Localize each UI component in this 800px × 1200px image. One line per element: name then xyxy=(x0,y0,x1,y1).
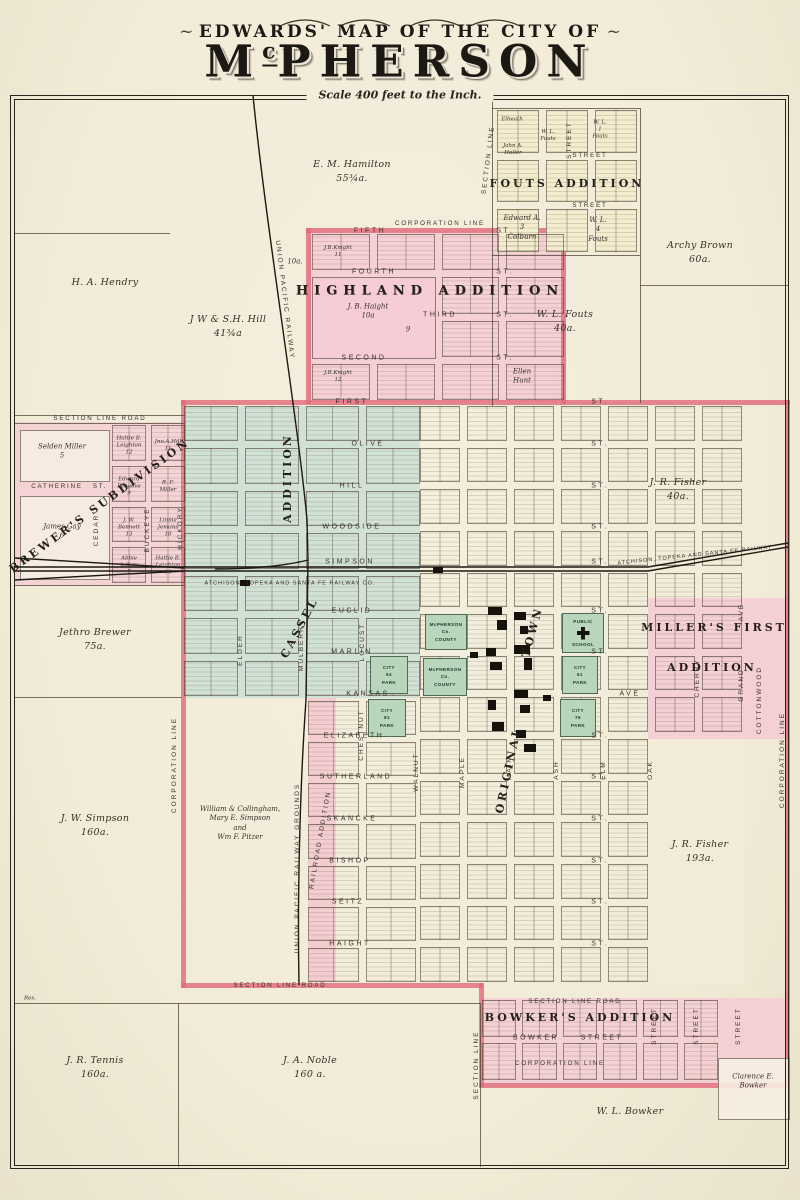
map-scale-note: Scale 400 feet to the Inch. xyxy=(306,89,493,102)
parcel-owner-label: 10a. xyxy=(287,257,302,266)
city-block xyxy=(482,1043,516,1080)
city-block xyxy=(655,489,695,524)
city-block xyxy=(655,573,695,608)
county-block-1: McPHERSON Co. COUNTY xyxy=(425,614,467,650)
boundary-line xyxy=(15,585,185,586)
city-block xyxy=(306,406,360,441)
city-block xyxy=(245,661,299,696)
boundary-line xyxy=(480,1003,481,1167)
parcel-owner-label: J. W. Simpson 160a. xyxy=(61,812,130,841)
city-block xyxy=(608,448,648,483)
city-block xyxy=(420,489,460,524)
city-block xyxy=(420,781,460,816)
building-footprint xyxy=(470,652,478,658)
building-footprint xyxy=(488,607,502,615)
city-block xyxy=(467,739,507,774)
city-block xyxy=(546,110,588,153)
building-footprint xyxy=(514,690,528,698)
city-block xyxy=(377,364,435,400)
city-block xyxy=(702,406,742,441)
city-block xyxy=(377,234,435,270)
city-block xyxy=(151,507,185,543)
city-block xyxy=(595,160,637,203)
parcel-owner-label: William & Collingham, Mary E. Simpson an… xyxy=(200,805,280,843)
building-footprint xyxy=(492,722,504,731)
city-block xyxy=(306,576,360,611)
parcel-owner-label: J. R. Tennis 160a. xyxy=(66,1054,123,1083)
building-footprint xyxy=(514,645,530,654)
boundary-line xyxy=(640,285,788,286)
map-sheet: ~ EDWARDS' MAP OF THE CITY OF ~ McPHERSO… xyxy=(0,0,800,1200)
building-footprint xyxy=(433,567,443,573)
city-block xyxy=(702,573,742,608)
city-block xyxy=(702,489,742,524)
city-block xyxy=(561,781,601,816)
city-block xyxy=(561,448,601,483)
city-block xyxy=(514,781,554,816)
boundary-line xyxy=(492,108,640,109)
city-block xyxy=(608,697,648,732)
city-block xyxy=(245,448,299,483)
city-block xyxy=(366,783,417,817)
city-block xyxy=(702,614,742,649)
city-block xyxy=(366,618,420,653)
parcel-owner-label: J W & S.H. Hill 41¾a xyxy=(190,313,267,342)
city-block xyxy=(467,489,507,524)
section-line-road-band xyxy=(181,983,483,988)
city-block xyxy=(514,822,554,857)
city-block xyxy=(563,1043,597,1080)
map-canvas: McPHERSON Co. COUNTYMcPHERSON Co. COUNTY… xyxy=(0,0,800,1200)
city-block xyxy=(514,531,554,566)
boundary-line xyxy=(178,1003,179,1167)
boundary-line xyxy=(15,1003,480,1004)
building-footprint xyxy=(520,705,530,713)
boundary-line xyxy=(15,697,181,698)
city-block xyxy=(442,234,500,270)
building-footprint xyxy=(543,695,551,701)
city-block xyxy=(561,864,601,899)
city-block xyxy=(608,406,648,441)
parcel-owner-label: W. L. Bowker xyxy=(597,1105,664,1119)
city-block xyxy=(467,448,507,483)
city-block xyxy=(684,1043,718,1080)
city-block xyxy=(595,110,637,153)
city-block xyxy=(467,906,507,941)
city-block xyxy=(603,1043,637,1080)
city-block xyxy=(514,406,554,441)
city-block xyxy=(514,947,554,982)
building-footprint xyxy=(488,700,496,710)
city-block xyxy=(306,448,360,483)
city-block xyxy=(420,947,460,982)
parcel-owner-label: J. A. Noble 160 a. xyxy=(283,1054,337,1083)
city-block xyxy=(467,406,507,441)
city-block xyxy=(514,864,554,899)
city-block xyxy=(245,576,299,611)
city-block xyxy=(184,618,238,653)
city-block xyxy=(561,531,601,566)
boundary-line xyxy=(640,108,641,403)
city-block xyxy=(506,234,564,270)
city-block xyxy=(420,822,460,857)
city-block xyxy=(467,573,507,608)
city-block xyxy=(514,448,554,483)
city-block xyxy=(306,491,360,526)
city-block xyxy=(608,864,648,899)
city-block xyxy=(702,531,742,566)
public-school-block: PUBLICSCHOOL xyxy=(562,613,604,653)
building-footprint xyxy=(514,612,526,620)
city-block xyxy=(522,1043,556,1080)
city-block xyxy=(366,448,420,483)
city-block xyxy=(112,507,146,543)
city-block xyxy=(306,533,360,568)
city-block xyxy=(420,573,460,608)
city-block xyxy=(420,739,460,774)
city-block xyxy=(514,906,554,941)
city-block xyxy=(702,697,742,732)
city-block xyxy=(112,547,146,583)
city-block xyxy=(506,277,564,313)
city-block xyxy=(184,491,238,526)
city-block xyxy=(245,618,299,653)
fouts-addition-grid xyxy=(497,110,637,252)
city-block xyxy=(595,209,637,252)
city-block xyxy=(608,947,648,982)
street-label-vertical: UNION PACIFIC RAILWAY xyxy=(273,240,296,360)
city-block xyxy=(420,864,460,899)
city-block xyxy=(184,661,238,696)
building-footprint xyxy=(497,620,507,630)
city-block xyxy=(366,406,420,441)
city-block xyxy=(420,531,460,566)
city-block xyxy=(245,533,299,568)
city-block xyxy=(308,742,359,776)
building-footprint xyxy=(490,662,502,670)
city-block xyxy=(312,234,370,270)
city-block xyxy=(655,531,695,566)
city-block xyxy=(608,739,648,774)
city-block xyxy=(467,822,507,857)
city-block xyxy=(561,947,601,982)
city-block xyxy=(514,489,554,524)
city-block xyxy=(608,531,648,566)
city-block xyxy=(497,160,539,203)
city-block xyxy=(514,697,554,732)
school-cross-icon xyxy=(577,627,590,640)
city-block xyxy=(603,1000,637,1037)
building-footprint xyxy=(240,580,250,586)
city-block xyxy=(655,614,695,649)
brewers-subdivision-grid xyxy=(112,425,185,583)
city-block xyxy=(308,907,359,941)
city-block xyxy=(366,533,420,568)
city-block xyxy=(306,618,360,653)
building-footprint xyxy=(524,658,532,670)
city-block xyxy=(151,425,185,461)
parcel-owner-label: Res. xyxy=(24,995,36,1002)
city-block xyxy=(245,491,299,526)
city-park-block: CITY 64 PARK xyxy=(370,656,408,694)
selden-miller-parcel xyxy=(20,430,110,482)
city-block xyxy=(420,697,460,732)
city-park-block: CITY 61 PARK xyxy=(562,656,598,694)
city-block xyxy=(561,406,601,441)
parcel-owner-label: Jethro Brewer 75a. xyxy=(59,626,131,655)
city-block xyxy=(151,466,185,502)
parcel-owner-label: Archy Brown 60a. xyxy=(667,239,733,268)
city-block xyxy=(366,576,420,611)
city-block xyxy=(608,822,648,857)
city-block xyxy=(608,614,648,649)
city-block xyxy=(684,1000,718,1037)
city-block xyxy=(245,406,299,441)
city-block xyxy=(497,110,539,153)
city-block xyxy=(366,866,417,900)
city-block xyxy=(184,576,238,611)
city-park-block: CITY 81 PARK xyxy=(368,699,406,737)
street-label-vertical: SECTION LINE xyxy=(481,125,498,195)
boundary-line xyxy=(15,415,185,416)
city-block xyxy=(655,448,695,483)
city-block xyxy=(442,277,500,313)
city-block xyxy=(561,739,601,774)
city-block xyxy=(420,406,460,441)
city-block xyxy=(420,906,460,941)
city-block xyxy=(608,489,648,524)
building-footprint xyxy=(520,626,528,634)
clarence-bowker-parcel xyxy=(718,1058,790,1120)
city-block xyxy=(561,573,601,608)
street-label-vertical: UNION PACIFIC RAILWAY GROUNDS xyxy=(294,783,302,954)
city-block xyxy=(366,491,420,526)
city-block xyxy=(308,783,359,817)
city-block xyxy=(561,822,601,857)
county-block-2: McPHERSON Co. COUNTY xyxy=(423,658,467,696)
corporation-line-top xyxy=(181,400,790,405)
fisher-parcel-cover xyxy=(652,739,744,985)
city-block xyxy=(563,1000,597,1037)
city-block xyxy=(366,948,417,982)
city-block xyxy=(702,448,742,483)
highland-corp-left xyxy=(306,228,311,404)
city-block xyxy=(112,425,146,461)
city-block xyxy=(514,573,554,608)
city-block xyxy=(420,448,460,483)
city-block xyxy=(184,448,238,483)
city-block xyxy=(514,656,554,691)
city-block xyxy=(506,321,564,357)
building-footprint xyxy=(486,648,496,656)
building-footprint xyxy=(516,730,526,738)
boundary-line xyxy=(15,423,185,424)
city-block xyxy=(506,364,564,400)
city-block xyxy=(608,656,648,691)
parcel-owner-label: H. A. Hendry xyxy=(72,276,139,290)
city-block xyxy=(702,656,742,691)
building-footprint xyxy=(524,744,536,752)
city-grid-southwest xyxy=(308,701,416,982)
city-block xyxy=(308,824,359,858)
street-label-vertical: CORPORATION LINE xyxy=(171,717,179,813)
city-block xyxy=(184,533,238,568)
parcel-owner-label: E. M. Hamilton 55¾a. xyxy=(313,158,391,187)
city-block xyxy=(655,406,695,441)
city-grid-west xyxy=(184,406,420,696)
city-block xyxy=(112,466,146,502)
city-block xyxy=(308,948,359,982)
city-block xyxy=(366,824,417,858)
city-block xyxy=(522,1000,556,1037)
city-block xyxy=(643,1000,677,1037)
road-label: CORPORATION LINE xyxy=(395,220,485,228)
city-block xyxy=(442,364,500,400)
city-block xyxy=(312,364,370,400)
city-block xyxy=(366,742,417,776)
city-block xyxy=(306,661,360,696)
city-block xyxy=(561,489,601,524)
city-block xyxy=(442,321,500,357)
corporation-line-right xyxy=(785,400,790,1088)
city-block xyxy=(467,781,507,816)
city-block xyxy=(546,160,588,203)
city-block xyxy=(482,1000,516,1037)
bowkers-addition-grid xyxy=(482,1000,718,1080)
city-block xyxy=(561,906,601,941)
boundary-line xyxy=(15,233,170,234)
city-block xyxy=(608,906,648,941)
city-block xyxy=(608,573,648,608)
james-gay-parcel xyxy=(20,496,110,580)
city-park-block: CITY 76 PARK xyxy=(560,699,596,737)
city-block xyxy=(467,864,507,899)
city-block xyxy=(655,656,695,691)
city-block xyxy=(655,697,695,732)
haight-block-cover xyxy=(312,277,436,359)
city-block xyxy=(151,547,185,583)
city-block xyxy=(308,701,359,735)
city-block xyxy=(643,1043,677,1080)
city-block xyxy=(467,531,507,566)
city-block xyxy=(608,781,648,816)
city-block xyxy=(467,947,507,982)
city-block xyxy=(308,866,359,900)
city-block xyxy=(184,406,238,441)
city-block xyxy=(366,907,417,941)
